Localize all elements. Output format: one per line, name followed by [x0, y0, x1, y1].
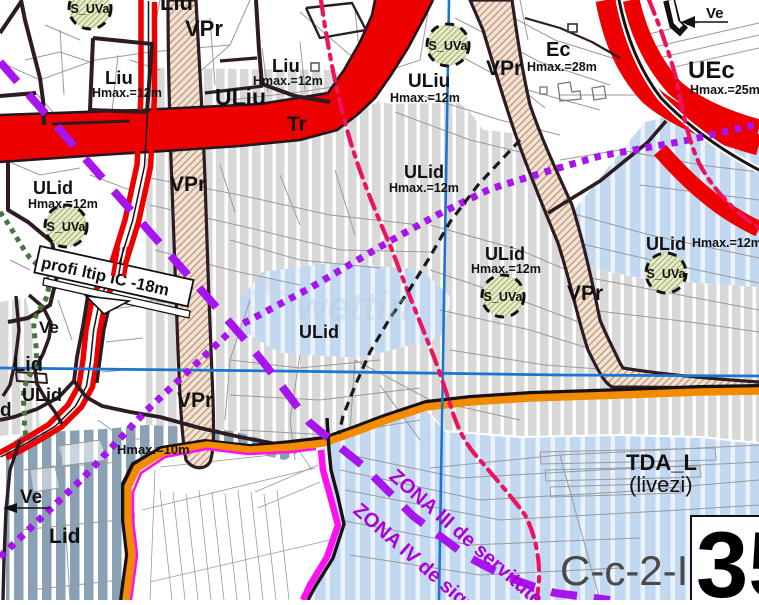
- svg-text:Hmax.=25m: Hmax.=25m: [690, 83, 759, 97]
- svg-text:ULid: ULid: [646, 234, 686, 254]
- svg-text:ULid: ULid: [22, 385, 62, 405]
- svg-text:Hmax.=12m: Hmax.=12m: [692, 236, 759, 250]
- svg-text:ULid: ULid: [33, 178, 73, 198]
- svg-text:Lid: Lid: [49, 525, 81, 548]
- svg-text:Hmax.=12m: Hmax.=12m: [92, 86, 162, 100]
- svg-text:Hmax.=12m: Hmax.=12m: [471, 262, 541, 276]
- svg-text:d: d: [0, 400, 12, 421]
- svg-text:VPr: VPr: [185, 16, 223, 41]
- svg-text:Hmax.=28m: Hmax.=28m: [527, 60, 597, 74]
- svg-text:S_UVa: S_UVa: [484, 290, 524, 304]
- svg-text:Ve: Ve: [706, 5, 724, 22]
- svg-text:S_UVa: S_UVa: [47, 220, 87, 234]
- svg-text:UEc: UEc: [688, 57, 735, 84]
- svg-text:VPr: VPr: [486, 57, 522, 80]
- svg-text:Hmax.=12m: Hmax.=12m: [390, 91, 460, 105]
- svg-text:ULid: ULid: [485, 244, 525, 264]
- svg-text:Hmax.=12m: Hmax.=12m: [28, 197, 98, 211]
- svg-text:Tr: Tr: [287, 113, 307, 136]
- svg-text:Hmax.=12m: Hmax.=12m: [389, 181, 459, 195]
- svg-text:Hmax.=10m: Hmax.=10m: [117, 442, 190, 457]
- svg-text:Ve: Ve: [39, 318, 59, 337]
- svg-text:VPr: VPr: [170, 173, 206, 196]
- svg-text:S_UVa: S_UVa: [647, 267, 687, 281]
- svg-text:(livezi): (livezi): [629, 472, 693, 497]
- svg-text:VPr: VPr: [567, 282, 603, 305]
- svg-text:S_UVa: S_UVa: [429, 39, 469, 53]
- svg-text:Liu: Liu: [272, 55, 300, 76]
- svg-text:Lid: Lid: [13, 354, 43, 376]
- svg-text:Ec: Ec: [546, 39, 570, 61]
- svg-text:ULid: ULid: [404, 162, 444, 182]
- svg-text:Ve: Ve: [20, 487, 42, 508]
- svg-text:C-c-2-I: C-c-2-I: [560, 547, 688, 594]
- svg-text:VPr: VPr: [177, 389, 213, 412]
- svg-text:Liu: Liu: [160, 0, 193, 15]
- svg-text:S_UVa: S_UVa: [71, 2, 111, 16]
- svg-text:ULid: ULid: [299, 322, 339, 342]
- svg-text:Liu: Liu: [105, 67, 133, 88]
- svg-text:ULiu: ULiu: [215, 84, 266, 110]
- svg-text:ULiu: ULiu: [408, 71, 450, 92]
- svg-text:35: 35: [696, 512, 759, 600]
